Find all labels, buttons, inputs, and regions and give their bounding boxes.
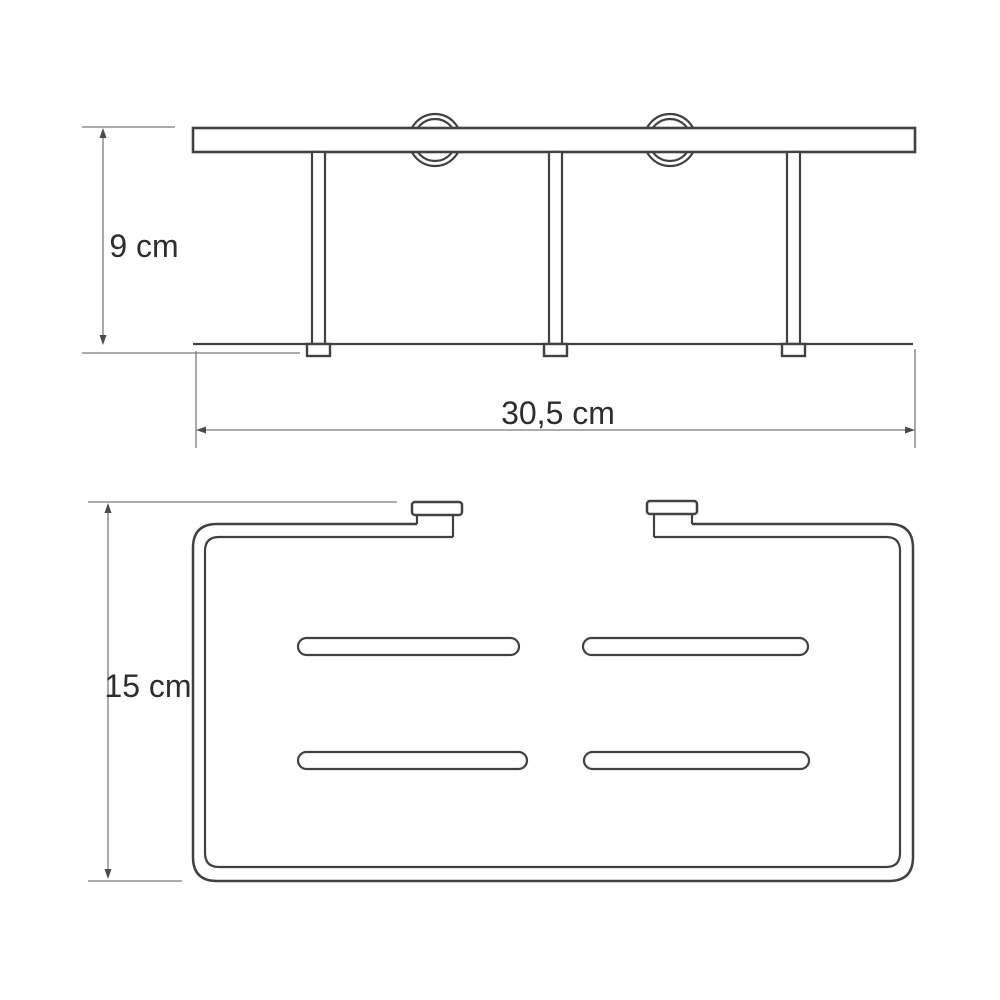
technical-drawing-canvas: 9 cm 30,5 cm	[0, 0, 1000, 1000]
height-label: 9 cm	[109, 228, 178, 264]
dimension-depth: 15 cm	[88, 502, 397, 881]
depth-label: 15 cm	[104, 668, 191, 704]
foot-middle	[544, 344, 567, 356]
arrow-right-icon	[905, 427, 915, 434]
dimension-height: 9 cm	[82, 127, 300, 353]
leg-middle	[549, 152, 562, 344]
leg-right	[787, 152, 800, 344]
slot-lower-right	[584, 752, 809, 769]
foot-right	[782, 344, 805, 356]
arrow-down-icon	[100, 335, 107, 345]
drawing-svg: 9 cm 30,5 cm	[0, 0, 1000, 1000]
mount-tab-left	[412, 502, 462, 537]
leg-left	[312, 152, 325, 344]
basket-outer-outline	[193, 524, 913, 881]
arrow-up-icon	[105, 503, 112, 513]
foot-left	[307, 344, 330, 356]
width-label: 30,5 cm	[501, 395, 615, 431]
basket-inner-outline	[205, 537, 900, 867]
slot-upper-left	[298, 638, 519, 655]
arrow-up-icon	[100, 128, 107, 138]
mount-tab-right-cap	[647, 501, 697, 514]
slot-upper-right	[583, 638, 808, 655]
wall-bar	[193, 128, 915, 152]
mount-tab-right	[647, 501, 697, 537]
dimension-width: 30,5 cm	[196, 349, 915, 448]
top-view: 15 cm	[88, 501, 913, 881]
mount-tab-left-cap	[412, 502, 462, 515]
front-view: 9 cm 30,5 cm	[82, 114, 915, 448]
slot-lower-left	[298, 752, 527, 769]
arrow-left-icon	[196, 427, 206, 434]
arrow-down-icon	[105, 869, 112, 879]
